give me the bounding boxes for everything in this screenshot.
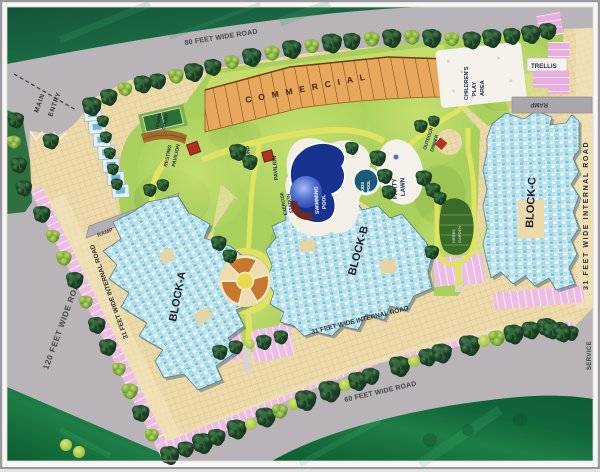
svg-text:PLAY: PLAY (472, 82, 478, 96)
svg-text:TRELLIS: TRELLIS (531, 63, 557, 70)
svg-text:CHILDREN'S: CHILDREN'S (464, 66, 470, 100)
svg-text:RAMP: RAMP (530, 101, 548, 107)
svg-text:SERVICE: SERVICE (587, 341, 593, 370)
svg-text:POOL: POOL (366, 180, 371, 192)
svg-text:AREA: AREA (480, 80, 486, 96)
svg-text:LAWN: LAWN (399, 177, 407, 196)
svg-text:HERBS: HERBS (451, 229, 456, 243)
svg-text:31 FEET WIDE INTERNAL ROAD: 31 FEET WIDE INTERNAL ROAD (583, 141, 590, 290)
svg-text:KIDS: KIDS (360, 182, 365, 192)
svg-text:GARDEN: GARDEN (457, 226, 462, 243)
svg-text:POOL: POOL (321, 193, 328, 209)
